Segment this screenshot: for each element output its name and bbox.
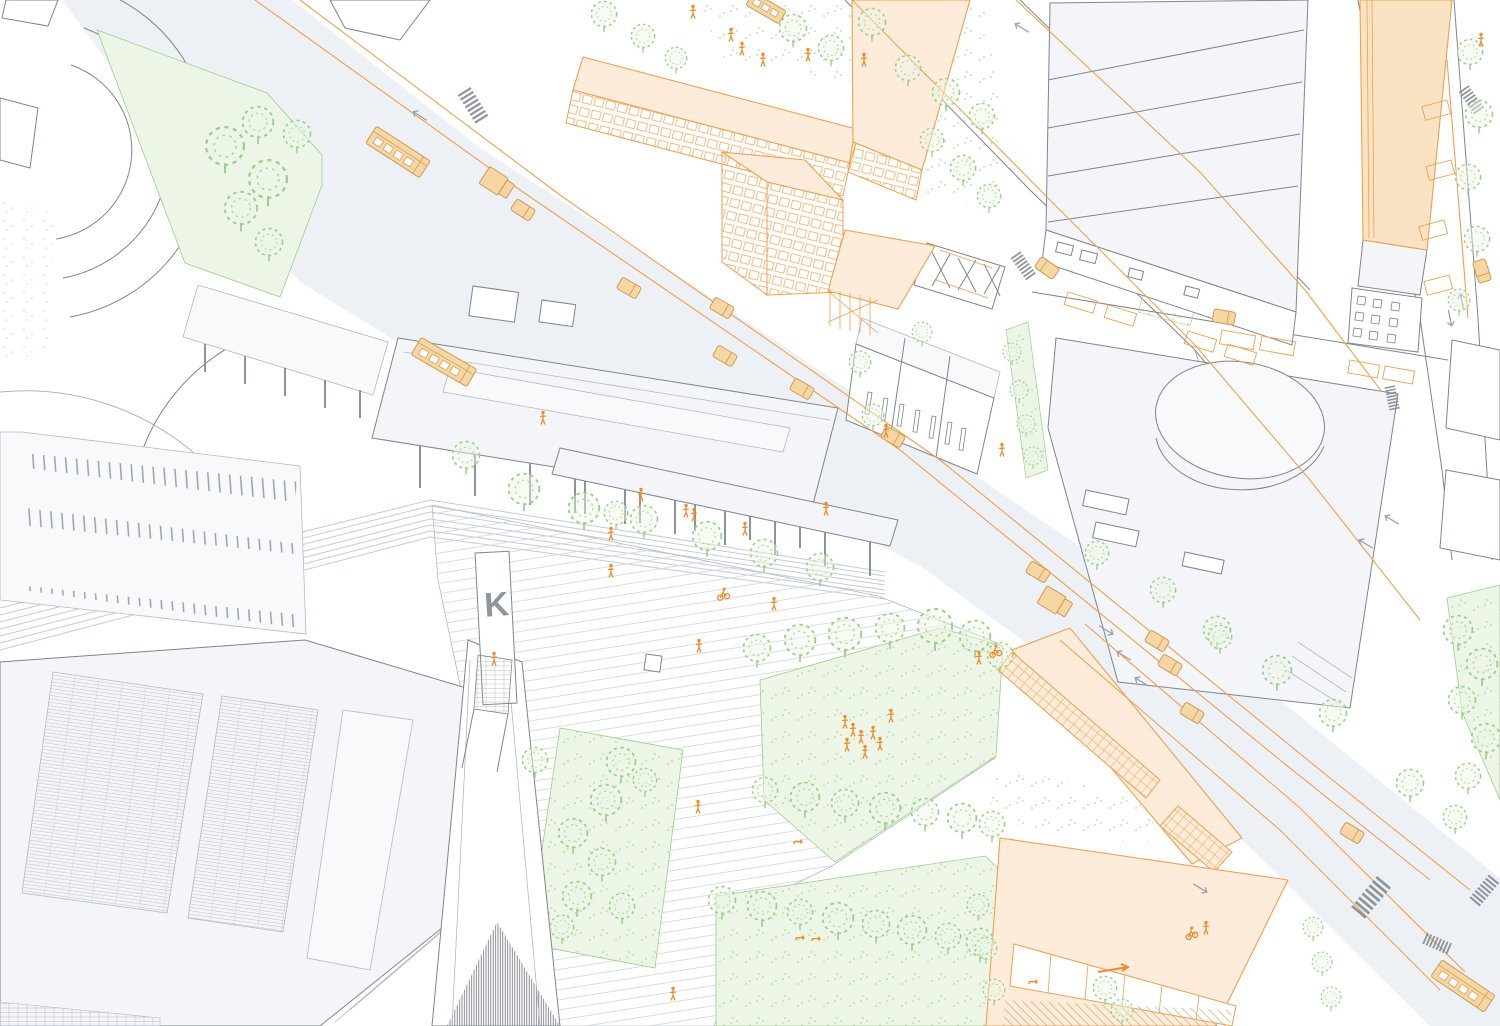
sand-area (0, 196, 54, 362)
masterplan-illustration: K (0, 0, 1500, 1026)
station-block-a (469, 286, 519, 322)
building-east-a (1446, 340, 1500, 440)
axonometric-city-drawing: K (0, 0, 1500, 1026)
pylon-letter: K (483, 585, 511, 625)
parking-lot (0, 432, 306, 634)
station-block-b (539, 300, 576, 327)
building-east-b (1440, 470, 1500, 560)
plaza-marker (644, 654, 662, 672)
